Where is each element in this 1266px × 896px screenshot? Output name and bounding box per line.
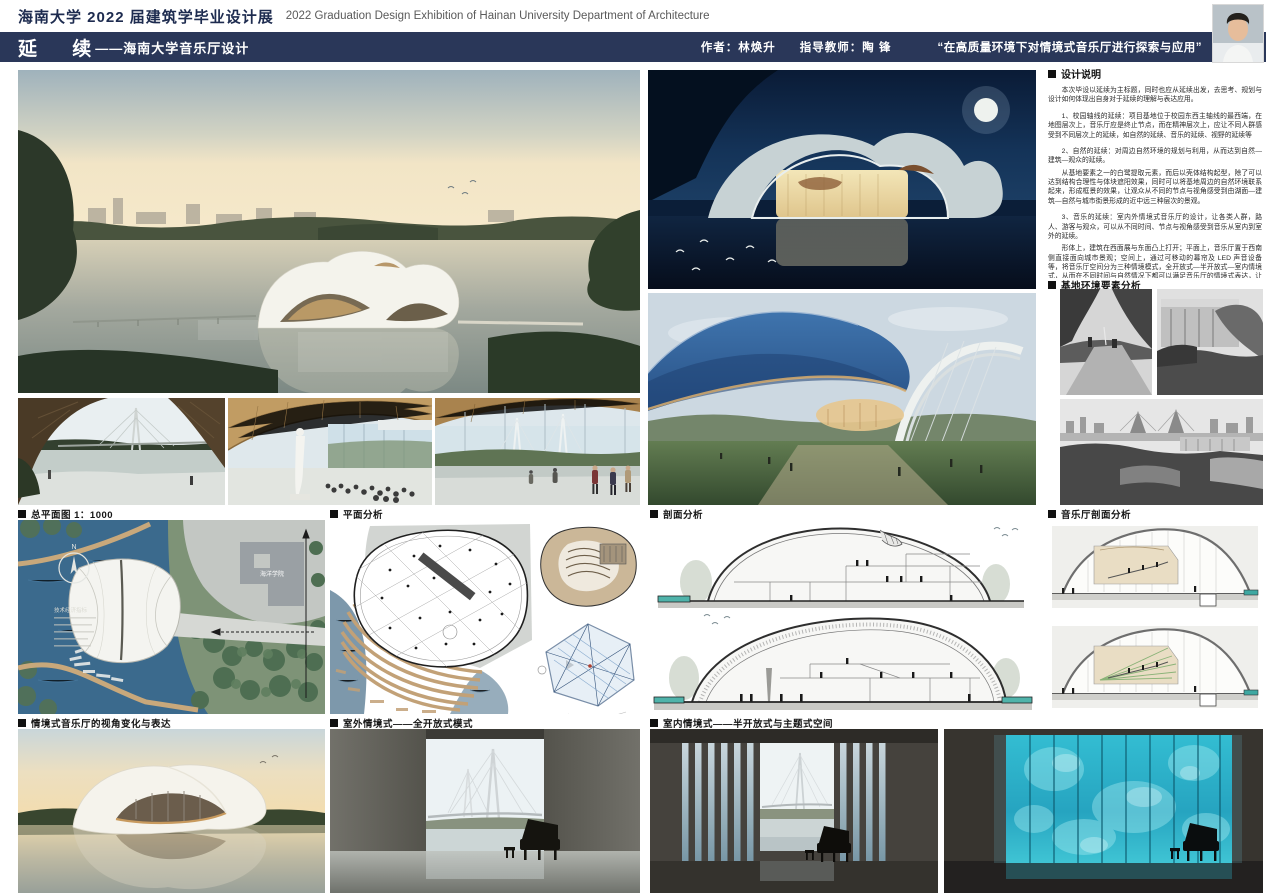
project-quote: “在高质量环境下对情境式音乐厅进行探索与应用” xyxy=(938,39,1203,55)
project-title: 延 续 xyxy=(18,34,93,61)
exhibition-title-en: 2022 Graduation Design Exhibition of Hai… xyxy=(286,10,710,22)
night-moon-svg xyxy=(648,70,1036,289)
eye-building xyxy=(73,765,266,889)
title-bar: 延 续 ——海南大学音乐厅设计 作者：林焕升 指导教师：陶 锋 “在高质量环境下… xyxy=(0,32,1266,62)
advisor-label: 指导教师：陶 锋 xyxy=(800,39,892,55)
site-photo-path-svg xyxy=(1060,289,1152,395)
poster: 海南大学 2022 届建筑学毕业设计展 2022 Graduation Desi… xyxy=(0,0,1266,896)
outdoor-stage-svg xyxy=(330,729,640,893)
outdoor-stage-render xyxy=(330,729,640,893)
blue-canopy-svg xyxy=(648,293,1036,505)
design-notes-paragraph: 本次毕设以延续为主标题，同时也应从延续出发，去思考、规划与设计如何体现出自身对于… xyxy=(1048,86,1262,105)
hero-dusk-lake-render xyxy=(18,70,640,393)
hall-section-2-sightlines xyxy=(1052,626,1258,708)
theme-led-svg xyxy=(944,729,1263,893)
theme-led-render xyxy=(944,729,1263,893)
section-label-text: 总平面图 1：1000 xyxy=(31,507,113,521)
site-photo-path xyxy=(1060,289,1152,395)
section-marker-icon xyxy=(650,510,658,518)
section-label-text: 剖面分析 xyxy=(663,507,703,521)
blue-canopy-render xyxy=(648,293,1036,505)
section-label-section-analysis: 剖面分析 xyxy=(650,508,703,519)
lobby-glass-svg xyxy=(435,398,640,505)
lobby-glass-render xyxy=(435,398,640,505)
section-marker-icon xyxy=(1048,510,1056,518)
design-notes-paragraph: 3、音乐的延续：室内外情境式音乐厅的设计，让各类人群，路人、游客与观众，可以从不… xyxy=(1048,213,1262,241)
arch-bridge-view-svg xyxy=(18,398,225,505)
design-notes-heading: 设计说明 xyxy=(1061,66,1101,81)
section-label-text: 音乐厅剖面分析 xyxy=(1061,507,1131,521)
site-plan-drawing: 海洋学院 xyxy=(18,520,325,714)
section-label-site-plan: 总平面图 1：1000 xyxy=(18,508,113,519)
design-notes-heading-row: 设计说明 xyxy=(1048,66,1262,81)
arch-bridge-view-render xyxy=(18,398,225,505)
exhibition-title-cn: 海南大学 2022 届建筑学毕业设计展 xyxy=(18,6,274,27)
design-notes-paragraph: 2、自然的延续：对周边自然环境的规划与利用，从而达到自然—建筑—观众的延续。 xyxy=(1048,147,1262,166)
sunset-building-render xyxy=(18,729,325,893)
section-marker-icon xyxy=(1048,281,1056,289)
hero-dusk-lake-svg xyxy=(18,70,640,393)
section-label-text: 情境式音乐厅的视角变化与表达 xyxy=(31,716,171,730)
section-marker-icon xyxy=(650,719,658,727)
section-label-hall-section: 音乐厅剖面分析 xyxy=(1048,508,1131,519)
section-label-indoor-mode: 室内情境式——半开放式与主题式空间 xyxy=(650,717,833,728)
section-marker-icon xyxy=(18,510,26,518)
header-bar: 海南大学 2022 届建筑学毕业设计展 2022 Graduation Desi… xyxy=(0,0,1266,32)
site-photo-building xyxy=(1157,289,1263,395)
section-marker-icon xyxy=(330,510,338,518)
hall-section-1 xyxy=(1052,526,1258,608)
compass-north-label: N xyxy=(71,544,76,551)
water-left xyxy=(658,596,690,602)
section-marker-icon xyxy=(18,719,26,727)
design-notes-paragraph: 形体上，建筑在西面展与东面凸上打开；平面上，音乐厅置于西南侧直接面向城市景观；空… xyxy=(1048,244,1262,278)
hall-section-svg xyxy=(1048,520,1263,714)
atrium-statue-svg xyxy=(228,398,432,505)
night-moon-render xyxy=(648,70,1036,289)
section-label-text: 室外情境式——全开放式模式 xyxy=(343,716,473,730)
section-analysis-svg xyxy=(650,520,1035,714)
plan-analysis-drawing xyxy=(330,520,640,714)
design-notes-paragraph: 从基地要素之一的白鹭提取元素，而后以壳体结构起型，除了可以达到结构合理性与体块遮… xyxy=(1048,169,1262,207)
sunset-building-svg xyxy=(18,729,325,893)
indoor-semiopen-svg xyxy=(650,729,938,893)
project-subtitle: ——海南大学音乐厅设计 xyxy=(95,38,249,57)
site-photo-panorama xyxy=(1060,399,1263,505)
plan-analysis-svg xyxy=(330,520,640,714)
author-label: 作者：林焕升 xyxy=(701,39,776,55)
section-marker-icon xyxy=(1048,70,1056,78)
section-label-text: 室内情境式——半开放式与主题式空间 xyxy=(663,716,833,730)
section-analysis-drawing xyxy=(650,520,1035,714)
site-photo-building-svg xyxy=(1157,289,1263,395)
author-portrait-image xyxy=(1213,5,1263,62)
design-notes-paragraph: 1、校园轴线的延续：项目基地位于校园东西主轴线的最西端，在地图层次上，音乐厅应是… xyxy=(1048,112,1262,140)
second-floor-plan xyxy=(541,527,637,606)
section-marker-icon xyxy=(330,719,338,727)
site-plan-svg: 海洋学院 xyxy=(18,520,325,714)
hall-section-drawing xyxy=(1048,520,1263,714)
section-label-plan-analysis: 平面分析 xyxy=(330,508,383,519)
music-hall-building xyxy=(258,251,459,393)
indoor-semiopen-render xyxy=(650,729,938,893)
author-photo xyxy=(1213,5,1263,62)
indicators-title: 技术经济指标 xyxy=(54,606,88,614)
section-label-outdoor-mode: 室外情境式——全开放式模式 xyxy=(330,717,473,728)
atrium-statue-render xyxy=(228,398,432,505)
moon-icon xyxy=(974,98,998,122)
campus-building-label: 海洋学院 xyxy=(260,570,284,578)
design-notes-section: 设计说明 本次毕设以延续为主标题，同时也应从延续出发，去思考、规划与设计如何体现… xyxy=(1048,66,1262,278)
site-photo-panorama-svg xyxy=(1060,399,1263,505)
section-label-perspective: 情境式音乐厅的视角变化与表达 xyxy=(18,717,171,728)
section-label-text: 平面分析 xyxy=(343,507,383,521)
